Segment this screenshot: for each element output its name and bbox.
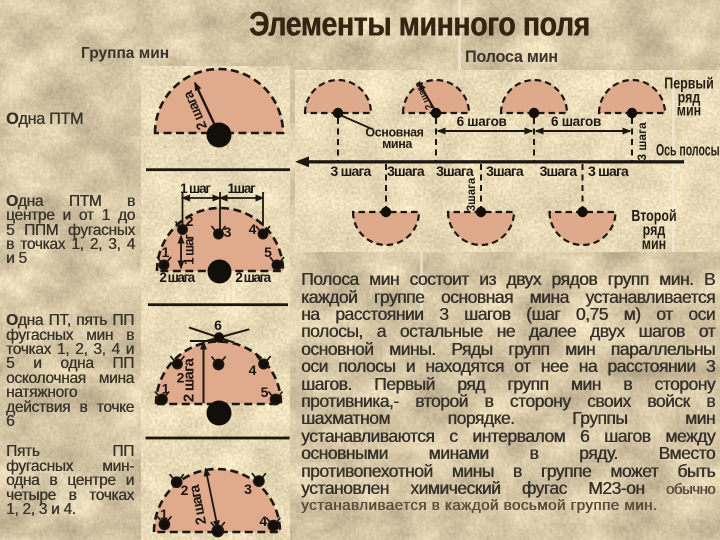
- svg-text:6 шагов: 6 шагов: [457, 114, 507, 129]
- svg-text:мина: мина: [382, 137, 413, 151]
- svg-text:4: 4: [259, 513, 267, 529]
- svg-text:5: 5: [264, 244, 272, 260]
- svg-text:2: 2: [177, 370, 185, 386]
- svg-text:3шага: 3шага: [466, 177, 478, 211]
- svg-text:1: 1: [162, 244, 170, 260]
- svg-text:Ось полосы: Ось полосы: [656, 140, 720, 159]
- svg-text:мин: мин: [642, 236, 666, 252]
- svg-text:6: 6: [214, 317, 222, 333]
- svg-text:мин: мин: [677, 102, 701, 120]
- svg-text:3шага: 3шага: [486, 163, 524, 179]
- svg-text:1: 1: [162, 381, 170, 397]
- svg-text:4: 4: [249, 362, 257, 378]
- svg-text:5: 5: [261, 384, 269, 400]
- svg-text:3 шага: 3 шага: [331, 163, 372, 179]
- svg-text:6 шагов: 6 шагов: [551, 114, 601, 129]
- svg-text:2: 2: [186, 213, 194, 229]
- svg-text:3: 3: [244, 481, 252, 497]
- svg-text:3 шага: 3 шага: [635, 122, 649, 161]
- svg-text:3шага: 3шага: [387, 163, 425, 179]
- svg-text:2: 2: [181, 482, 189, 498]
- svg-text:3 шага: 3 шага: [588, 163, 629, 179]
- svg-text:3: 3: [224, 224, 232, 240]
- svg-text:1шаг: 1шаг: [227, 181, 256, 196]
- svg-text:3шага: 3шага: [540, 163, 578, 179]
- svg-text:1: 1: [160, 506, 168, 522]
- svg-text:2 шага: 2 шага: [235, 270, 271, 285]
- svg-text:3шага: 3шага: [436, 163, 474, 179]
- svg-text:1 шаг: 1 шаг: [180, 181, 211, 196]
- svg-text:1 шаг: 1 шаг: [182, 234, 197, 265]
- svg-text:2 шага: 2 шага: [159, 270, 195, 285]
- svg-text:4: 4: [249, 221, 257, 237]
